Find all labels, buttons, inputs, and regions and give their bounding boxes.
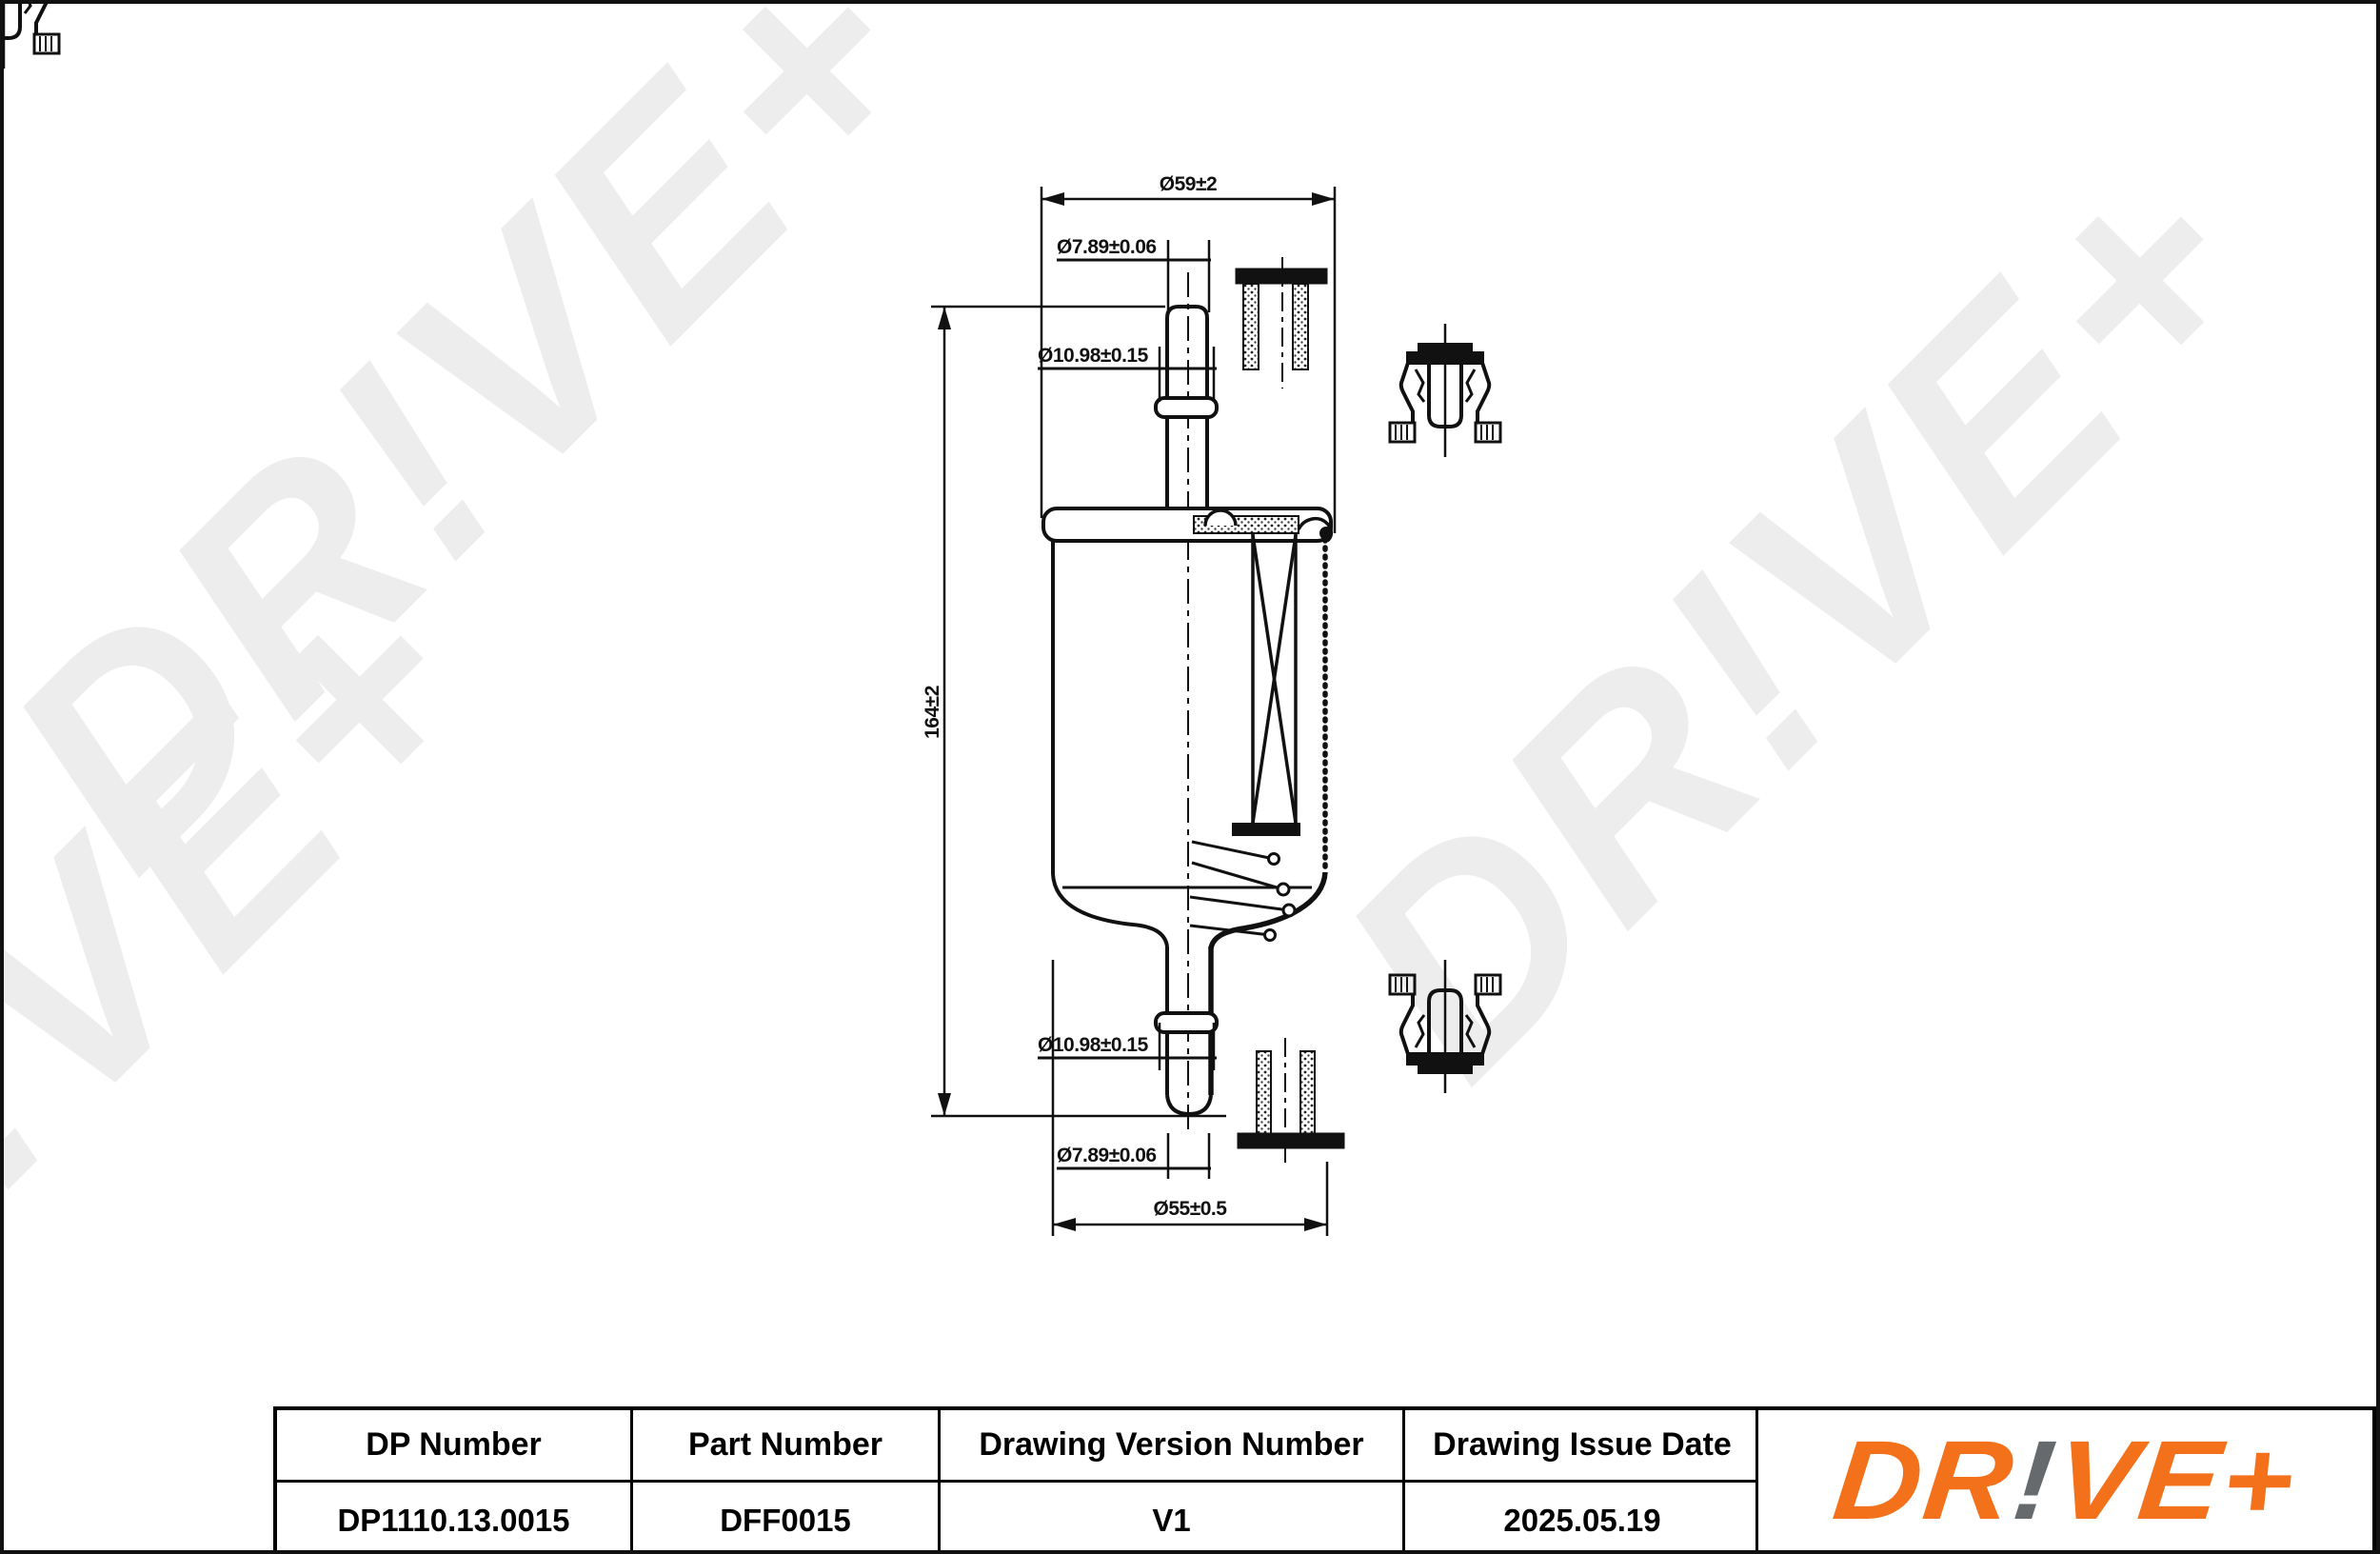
filter-body-view xyxy=(1043,272,1331,1129)
header-drawing-version-number: Drawing Version Number xyxy=(941,1410,1405,1483)
value-drawing-issue-date: 2025.05.19 xyxy=(1405,1483,1759,1554)
dimension-labels: Ø59±2 Ø7.89±0.06 Ø10.98±0.15 164±2 Ø10.9… xyxy=(922,173,1227,1220)
dim-label-inlet-collar-od: Ø10.98±0.15 xyxy=(1038,345,1149,367)
pedestal-wall-right xyxy=(1300,1051,1315,1135)
pedestal-base xyxy=(1238,1133,1344,1148)
header-drawing-issue-date: Drawing Issue Date xyxy=(1405,1410,1759,1483)
stub-wall-left xyxy=(1243,284,1259,369)
dim-label-top-diameter: Ø59±2 xyxy=(1160,173,1217,195)
outlet-collar xyxy=(1156,1013,1217,1032)
fuel-filter-technical-drawing: DR!VE+ DR!VE+ DR!VE+ xyxy=(4,4,2380,1554)
stub-wall-right xyxy=(1293,284,1308,369)
drive-plus-logo: DR!VE+ xyxy=(1829,1424,2301,1537)
funnel-left xyxy=(1053,874,1167,946)
dim-label-inlet-od: Ø7.89±0.06 xyxy=(1057,236,1157,258)
element-base xyxy=(1232,823,1300,836)
value-drawing-version-number: V1 xyxy=(941,1483,1405,1554)
dim-label-height: 164±2 xyxy=(922,686,943,739)
value-part-number: DFF0015 xyxy=(633,1483,941,1554)
engineering-drawing-page: DR!VE+ DR!VE+ DR!VE+ xyxy=(0,0,2380,1554)
pedestal-wall-left xyxy=(1257,1051,1271,1135)
dim-label-bottom-diameter: Ø55±0.5 xyxy=(1154,1198,1228,1220)
inlet-collar xyxy=(1156,398,1217,417)
logo-part-dr: DR xyxy=(1829,1418,2021,1544)
top-port-stub xyxy=(1236,257,1327,388)
svg-text:DR!VE+: DR!VE+ xyxy=(1279,98,2315,1135)
title-block: DP Number Part Number Drawing Version Nu… xyxy=(273,1406,1755,1554)
mounting-clip-top xyxy=(1390,324,1500,457)
brand-watermark: DR!VE+ DR!VE+ DR!VE+ xyxy=(4,4,2316,1554)
bottom-port-stub xyxy=(1238,1038,1344,1164)
logo-part-ve-plus: VE+ xyxy=(2051,1418,2303,1544)
dim-label-outlet-od: Ø7.89±0.06 xyxy=(1057,1145,1157,1166)
value-dp-number: DP1110.13.0015 xyxy=(277,1483,633,1554)
dim-label-outlet-collar-od: Ø10.98±0.15 xyxy=(1038,1034,1149,1056)
crimp-bead xyxy=(1319,527,1333,540)
logo-box: DR!VE+ xyxy=(1755,1406,2376,1554)
seam-dome xyxy=(1205,510,1236,526)
header-dp-number: DP Number xyxy=(277,1410,633,1483)
header-part-number: Part Number xyxy=(633,1410,941,1483)
spring xyxy=(1190,842,1295,941)
